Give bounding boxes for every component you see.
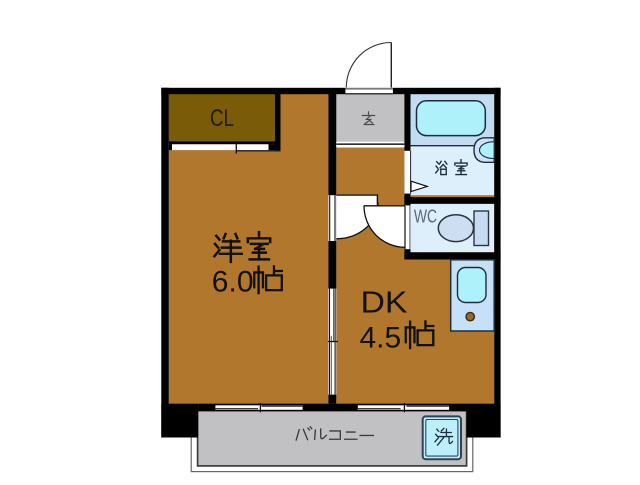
svg-text:4.5: 4.5: [360, 322, 402, 355]
svg-text:CL: CL: [210, 105, 234, 132]
svg-text:DK: DK: [361, 285, 408, 320]
svg-text:6.0: 6.0: [212, 266, 254, 299]
svg-text:WC: WC: [414, 206, 437, 227]
